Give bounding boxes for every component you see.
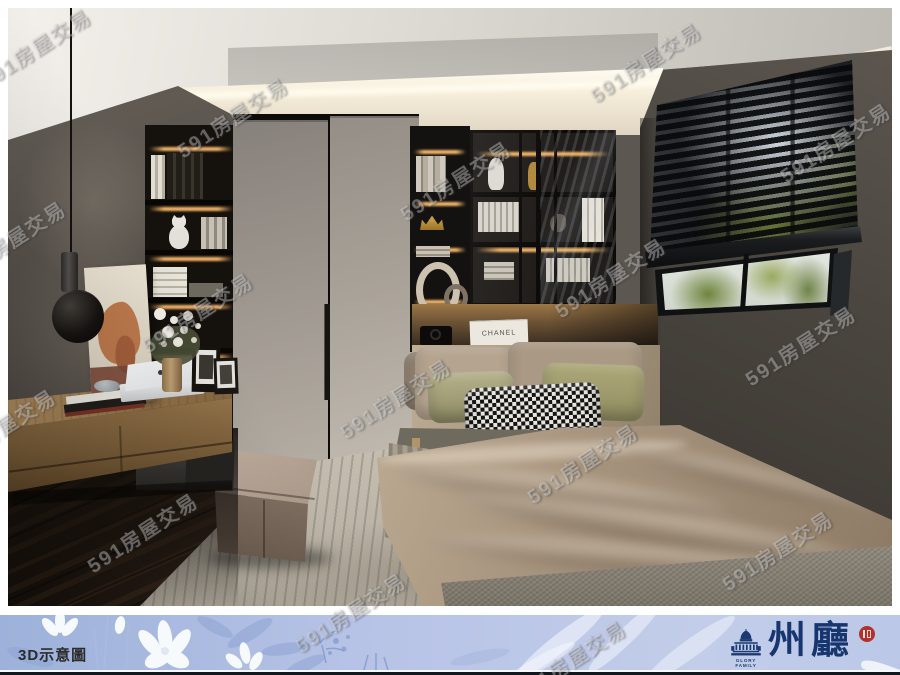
wardrobe-door-left (233, 120, 328, 480)
books (167, 153, 203, 199)
cat-figurine (169, 225, 189, 249)
shelf-led-strip (414, 150, 466, 154)
books (151, 155, 165, 199)
shelf-board (145, 298, 237, 303)
pendant-lamp-disc (52, 290, 104, 343)
render-type-label: 3D示意圖 (18, 644, 87, 665)
wardrobe-door-right (330, 116, 419, 478)
real-estate-photo-card: CHANEL (0, 0, 900, 675)
wooden-vase (162, 358, 182, 392)
shelf-led-strip (414, 202, 466, 206)
desk-bowl (94, 380, 120, 392)
seal-stamp-icon (859, 626, 875, 642)
storage-box (189, 283, 223, 297)
books (201, 217, 227, 249)
camera-lens (430, 329, 441, 340)
shelf-board (145, 250, 237, 255)
building-icon (728, 629, 764, 657)
book-stack (153, 267, 187, 297)
white-flower-bouquet (154, 308, 166, 320)
shelf-led-strip (149, 147, 233, 151)
book-stack (416, 246, 450, 257)
shelf-led-strip (149, 207, 233, 211)
shelf-led-strip (149, 257, 233, 261)
footer-banner: 3D示意圖 GLORY FAMILY 州廳 (0, 615, 900, 670)
bedroom-3d-render-photo: CHANEL (8, 8, 892, 606)
brand-name: 州廳 (768, 617, 854, 663)
frame-photo (220, 365, 233, 384)
frame-gap (0, 606, 900, 615)
brand-subtitle: GLORY FAMILY (726, 658, 766, 668)
shelf-board (145, 200, 237, 205)
books (416, 156, 446, 192)
pendant-lamp-cord (70, 8, 72, 254)
wardrobe-handle (324, 304, 330, 400)
brand-logo: GLORY FAMILY 州廳 (728, 615, 888, 670)
picture-frame (213, 358, 238, 395)
cat-figurine-head (172, 215, 186, 228)
glass-sheen (470, 130, 616, 306)
wardrobe (233, 114, 419, 480)
ottoman-front-seam (263, 500, 265, 558)
book-spine-label: CHANEL (482, 329, 517, 337)
frame-photo (199, 355, 213, 379)
pendant-lamp-cylinder (61, 252, 78, 292)
